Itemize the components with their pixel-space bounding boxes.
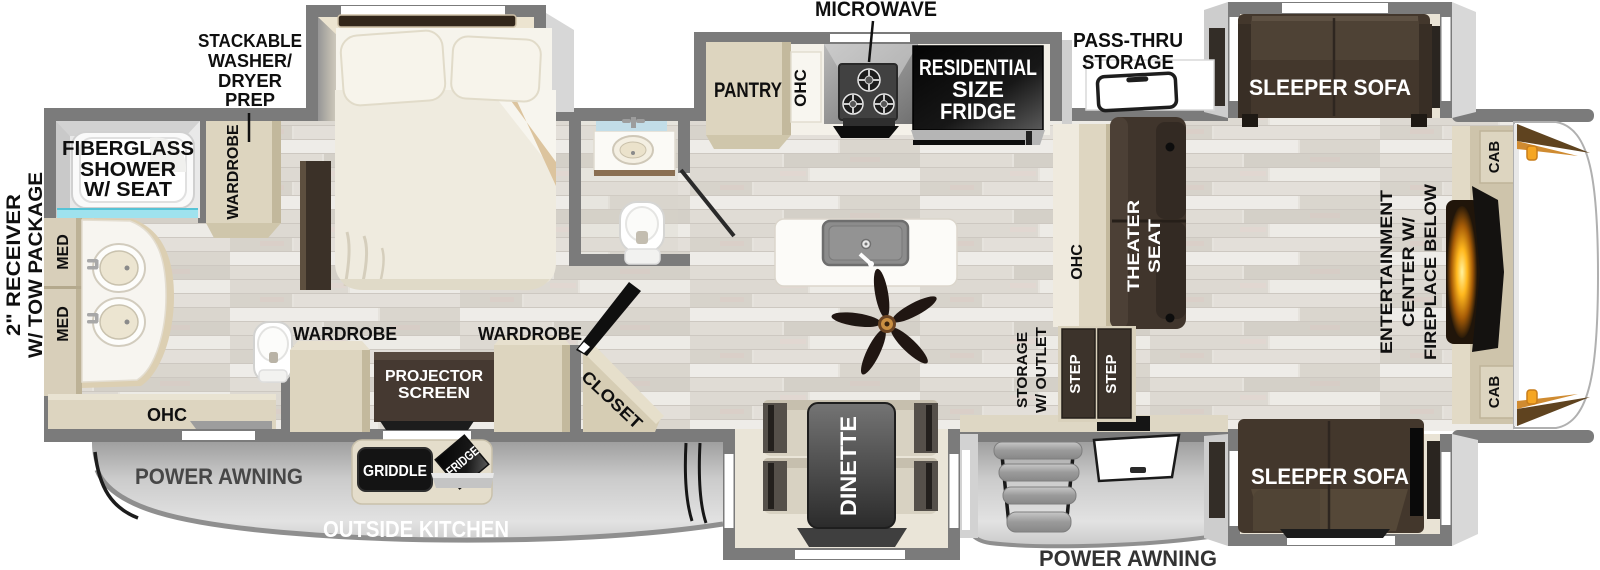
svg-text:WARDROBE: WARDROBE — [478, 324, 582, 344]
svg-text:WARDROBE: WARDROBE — [293, 324, 397, 344]
svg-text:OHC: OHC — [1069, 244, 1086, 280]
svg-text:PASS-THRU: PASS-THRU — [1073, 30, 1183, 52]
svg-text:SEAT: SEAT — [1145, 218, 1164, 273]
svg-text:OUTSIDE KITCHEN: OUTSIDE KITCHEN — [323, 516, 509, 542]
svg-text:CAB: CAB — [1486, 141, 1503, 174]
svg-text:STEP: STEP — [1067, 354, 1084, 393]
svg-text:DRYER: DRYER — [218, 71, 282, 91]
svg-text:FIBERGLASS: FIBERGLASS — [62, 138, 194, 160]
svg-text:SLEEPER SOFA: SLEEPER SOFA — [1251, 464, 1409, 489]
svg-text:W/ SEAT: W/ SEAT — [84, 179, 172, 201]
svg-text:WASHER/: WASHER/ — [208, 51, 292, 71]
svg-text:STORAGE: STORAGE — [1082, 52, 1174, 74]
svg-text:OHC: OHC — [791, 69, 810, 107]
svg-text:W/ OUTLET: W/ OUTLET — [1033, 327, 1050, 413]
svg-text:MED: MED — [55, 306, 72, 342]
svg-text:GRIDDLE: GRIDDLE — [363, 463, 427, 480]
svg-text:DINETTE: DINETTE — [836, 416, 861, 516]
svg-text:MED: MED — [55, 234, 72, 270]
svg-text:SHOWER: SHOWER — [80, 159, 177, 181]
svg-text:SCREEN: SCREEN — [398, 385, 470, 402]
svg-text:FRIDGE: FRIDGE — [940, 99, 1016, 124]
svg-text:SLEEPER SOFA: SLEEPER SOFA — [1249, 75, 1411, 100]
svg-text:FIREPLACE BELOW: FIREPLACE BELOW — [1421, 183, 1440, 360]
svg-text:POWER AWNING: POWER AWNING — [1039, 546, 1217, 570]
svg-text:THEATER: THEATER — [1124, 200, 1143, 292]
svg-text:MICROWAVE: MICROWAVE — [815, 0, 937, 21]
svg-text:PROJECTOR: PROJECTOR — [385, 368, 483, 385]
svg-text:CAB: CAB — [1486, 376, 1503, 409]
svg-text:STORAGE: STORAGE — [1014, 332, 1031, 408]
svg-text:PANTRY: PANTRY — [714, 79, 782, 102]
svg-text:PREP: PREP — [225, 90, 275, 110]
svg-text:W/ TOW PACKAGE: W/ TOW PACKAGE — [26, 172, 47, 358]
svg-text:CENTER W/: CENTER W/ — [1399, 217, 1418, 327]
svg-text:STEP: STEP — [1103, 354, 1120, 393]
svg-text:STACKABLE: STACKABLE — [198, 31, 302, 51]
svg-text:2" RECEIVER: 2" RECEIVER — [4, 194, 25, 336]
svg-text:ENTERTAINMENT: ENTERTAINMENT — [1377, 189, 1396, 354]
svg-text:POWER AWNING: POWER AWNING — [135, 464, 303, 489]
svg-text:WARDROBE: WARDROBE — [225, 124, 242, 219]
svg-text:OHC: OHC — [147, 405, 187, 425]
